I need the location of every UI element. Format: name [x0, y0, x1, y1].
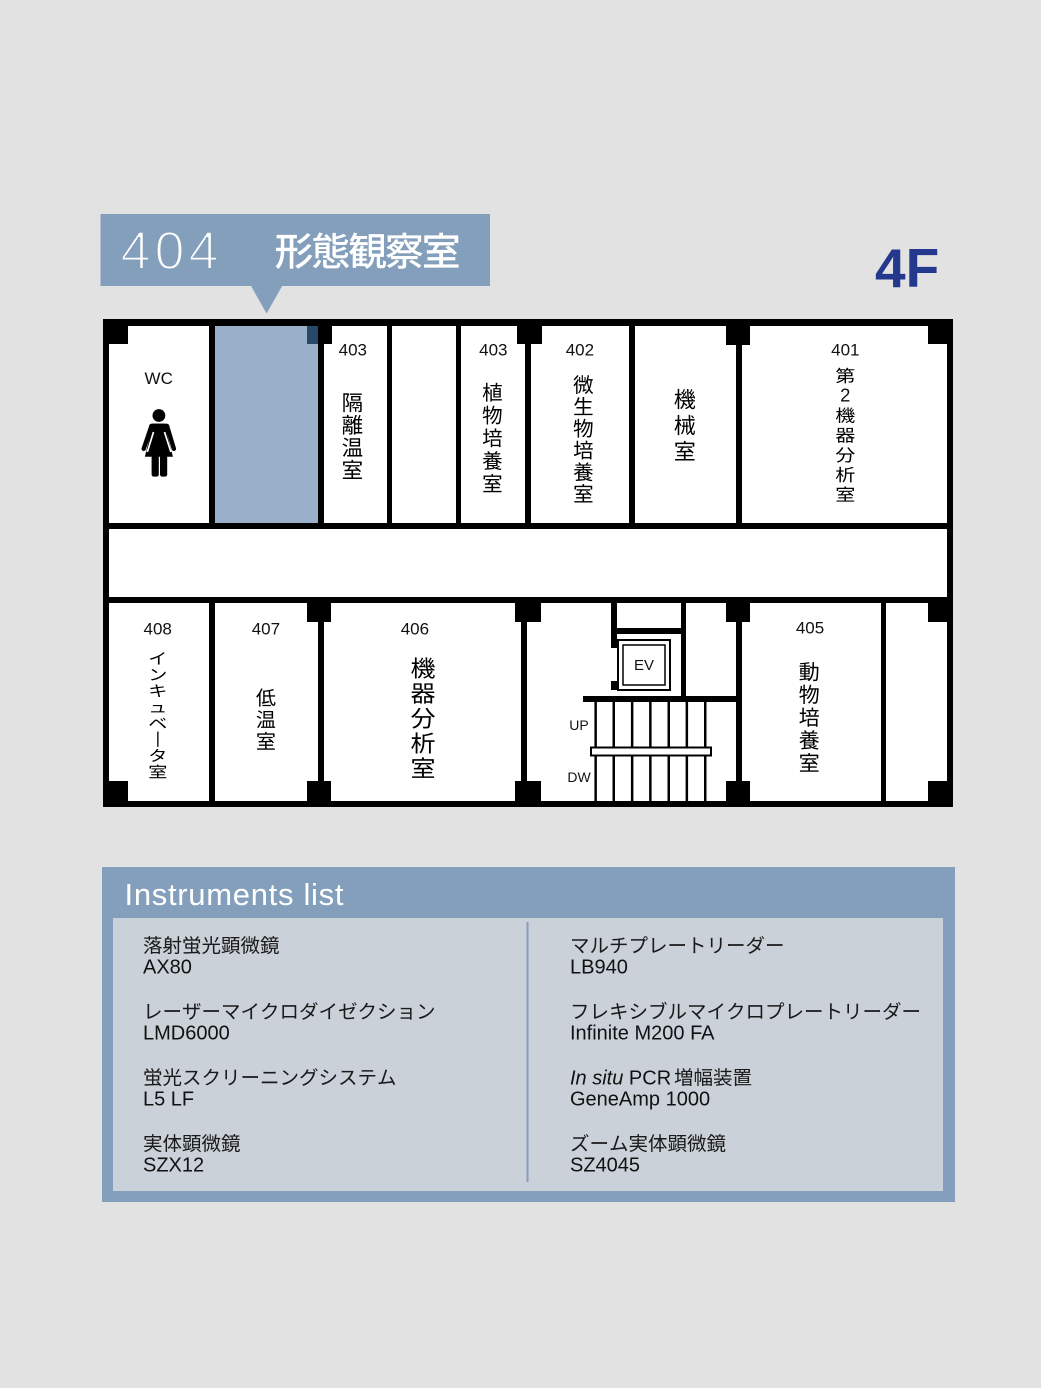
svg-text:GeneAmp 1000: GeneAmp 1000	[570, 1089, 710, 1111]
svg-text:LB940: LB940	[570, 957, 628, 979]
svg-text:408: 408	[144, 620, 172, 639]
svg-text:SZ4045: SZ4045	[570, 1155, 640, 1177]
svg-text:LMD6000: LMD6000	[143, 1023, 230, 1045]
svg-text:2: 2	[840, 385, 850, 406]
svg-text:EV: EV	[634, 657, 654, 674]
svg-text:L5 LF: L5 LF	[143, 1089, 194, 1111]
svg-text:In situ PCR: In situ PCR	[570, 1068, 671, 1090]
svg-text:406: 406	[401, 620, 429, 639]
svg-text:Infinite M200 FA: Infinite M200 FA	[570, 1023, 715, 1045]
svg-text:404: 404	[121, 221, 223, 281]
svg-text:DW: DW	[567, 769, 591, 785]
svg-text:407: 407	[252, 620, 280, 639]
svg-text:402: 402	[566, 341, 594, 360]
svg-text:AX80: AX80	[143, 957, 192, 979]
svg-text:405: 405	[796, 619, 824, 638]
svg-text:403: 403	[479, 341, 507, 360]
svg-text:UP: UP	[569, 717, 588, 733]
svg-text:4F: 4F	[875, 237, 939, 299]
svg-text:WC: WC	[145, 369, 173, 388]
svg-text:SZX12: SZX12	[143, 1155, 204, 1177]
svg-text:Instruments list: Instruments list	[125, 877, 345, 912]
svg-text:403: 403	[339, 341, 367, 360]
svg-text:401: 401	[831, 341, 859, 360]
